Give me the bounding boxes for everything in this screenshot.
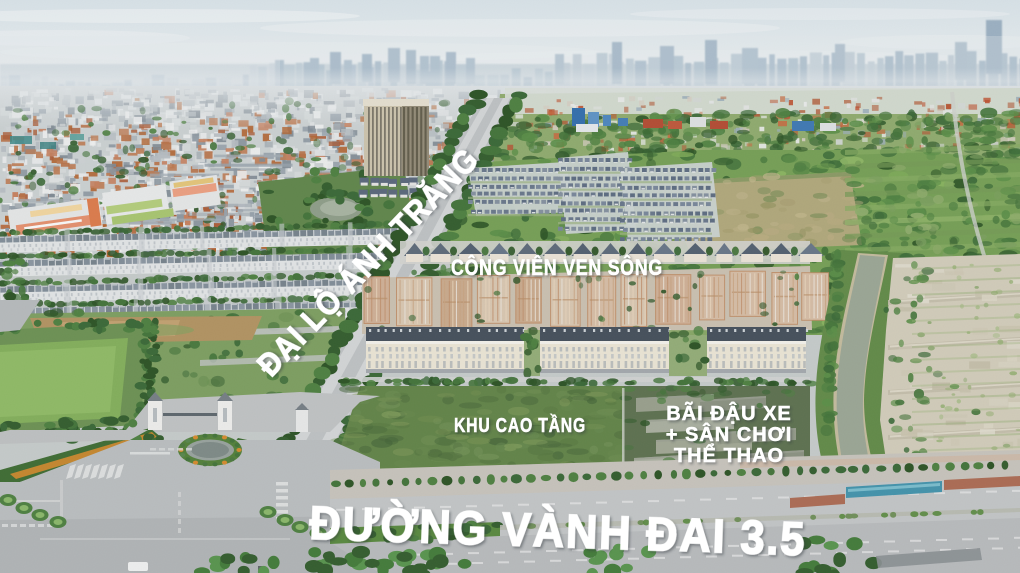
svg-text:BÃI ĐẬU XE: BÃI ĐẬU XE	[666, 401, 792, 425]
svg-text:KHU CAO TẦNG: KHU CAO TẦNG	[454, 414, 586, 437]
svg-text:+ SÂN CHƠI: + SÂN CHƠI	[666, 422, 793, 446]
svg-text:CÔNG VIÊN VEN SÔNG: CÔNG VIÊN VEN SÔNG	[451, 255, 663, 280]
svg-text:THỂ THAO: THỂ THAO	[674, 444, 784, 467]
